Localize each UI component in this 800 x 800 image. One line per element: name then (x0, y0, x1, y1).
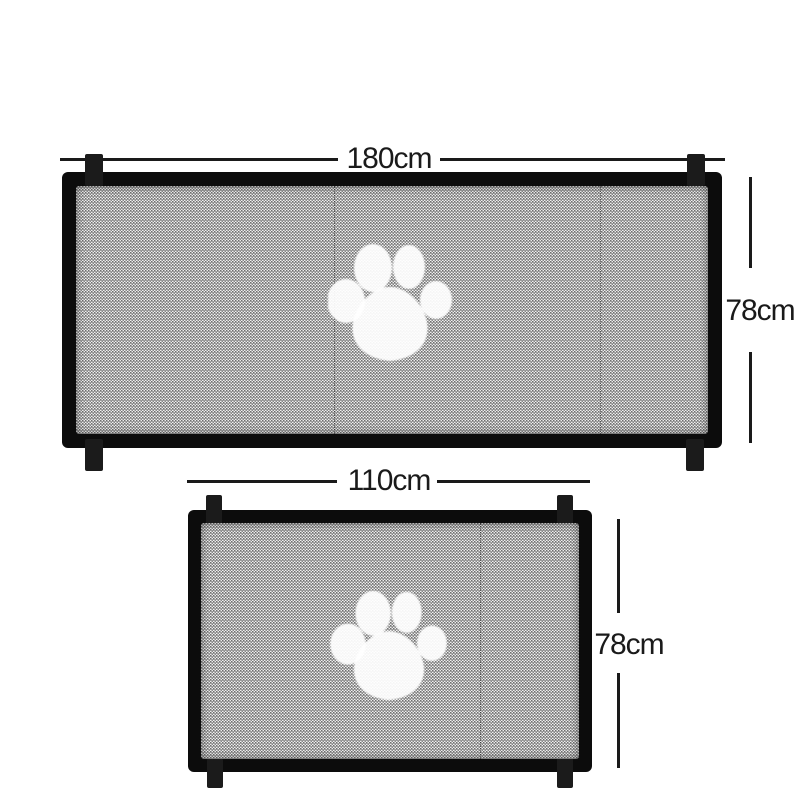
large-height-dimension-line-lower (749, 352, 752, 443)
large-gate-mounting-tab-bottom-left (85, 439, 103, 471)
small-width-dimension-label: 110cm (337, 465, 441, 497)
large-width-dimension-line-right (440, 158, 725, 161)
large-height-dimension-label: 78cm (715, 295, 800, 327)
large-gate-mounting-tab-top-right (687, 154, 705, 186)
paw-print-icon (330, 590, 448, 702)
large-width-dimension-label: 180cm (337, 143, 441, 175)
mesh-seam (480, 523, 481, 759)
large-gate-frame (62, 172, 722, 448)
small-gate-mesh-panel (201, 523, 579, 759)
mesh-seam (600, 186, 601, 434)
small-height-dimension-line-lower (617, 673, 620, 768)
small-height-dimension-label: 78cm (584, 629, 674, 661)
small-gate-frame (188, 510, 592, 772)
product-size-diagram: 180cm (0, 0, 800, 800)
small-width-dimension-line-right (437, 480, 590, 483)
small-gate-mounting-tab-bottom-right (557, 758, 573, 788)
large-gate-mesh-panel (76, 186, 708, 434)
small-gate-mounting-tab-top-right (557, 495, 573, 525)
large-gate-mounting-tab-top-left (85, 154, 103, 186)
small-gate-mounting-tab-top-left (206, 495, 222, 525)
small-width-dimension-line-left (187, 480, 337, 483)
small-gate-mounting-tab-bottom-left (207, 758, 223, 788)
large-gate-mounting-tab-bottom-right (686, 439, 704, 471)
small-height-dimension-line-upper (617, 519, 620, 613)
large-height-dimension-line-upper (749, 177, 752, 268)
paw-print-icon (328, 243, 452, 363)
